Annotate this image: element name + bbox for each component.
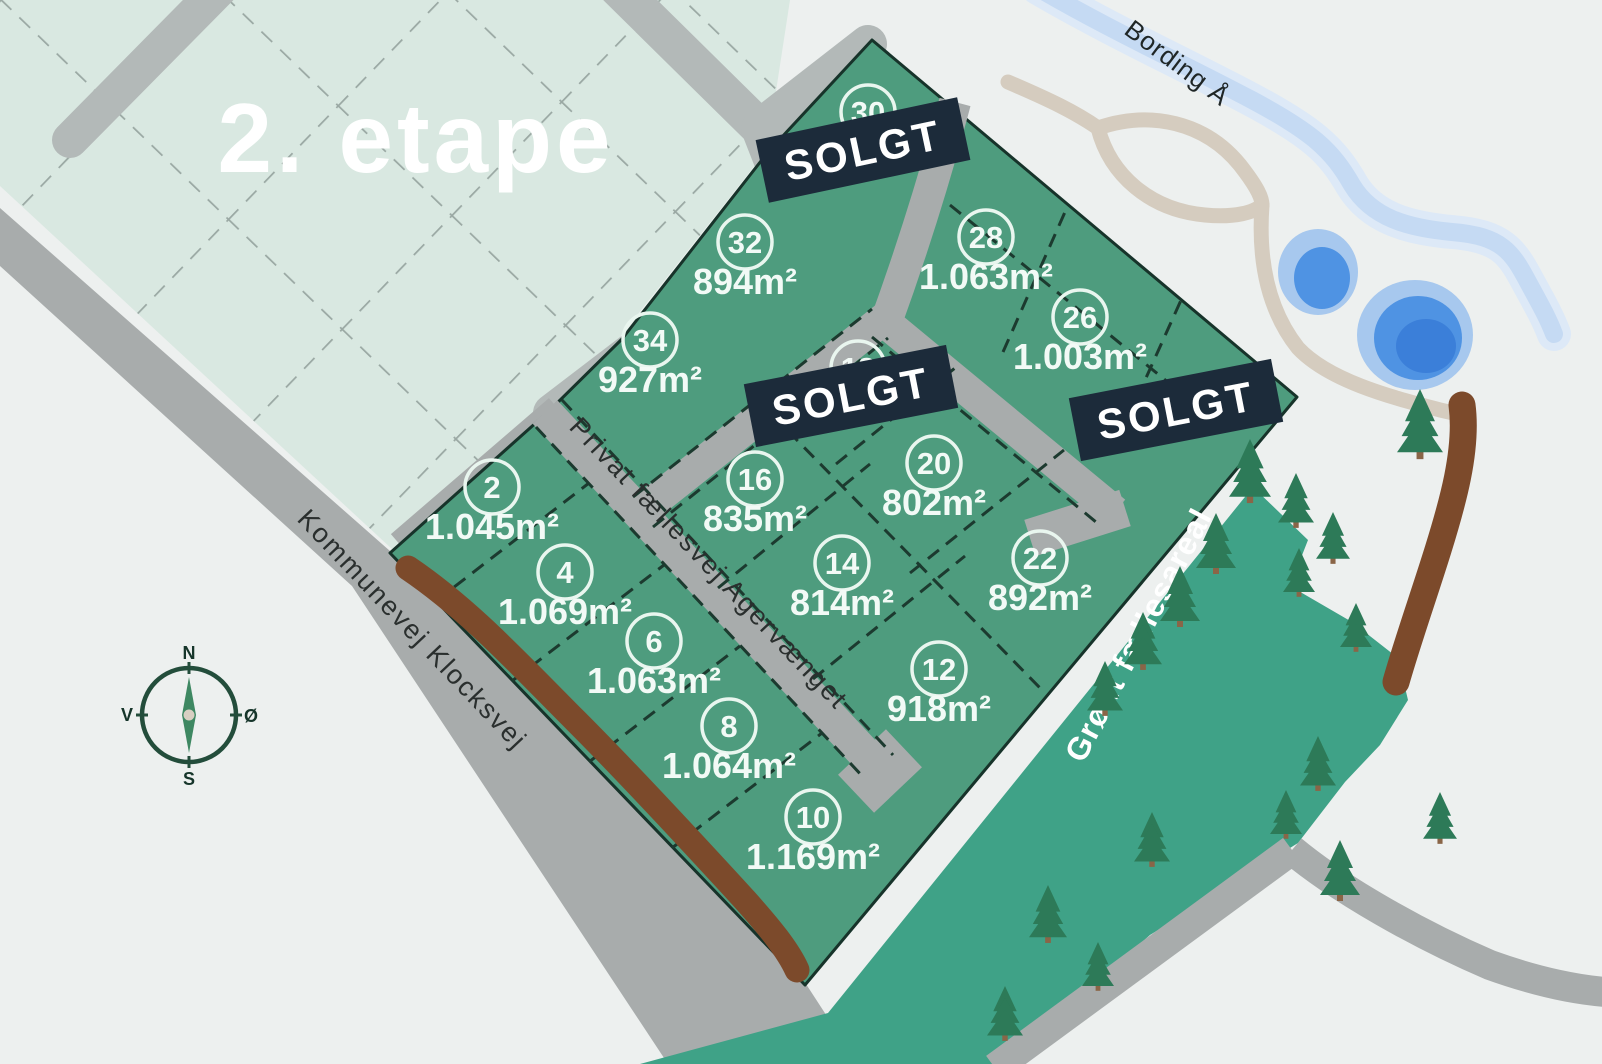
- plot-number: 4: [556, 555, 574, 590]
- plot-number: 10: [796, 800, 830, 835]
- plot-number: 12: [922, 652, 956, 687]
- compass-label-east: Ø: [244, 706, 258, 726]
- plot-area-label: 1.045m²: [425, 506, 559, 547]
- phase-title: 2. etape: [218, 83, 615, 193]
- plot-area-label: 927m²: [598, 359, 702, 400]
- pond-large-deep: [1396, 319, 1456, 373]
- plot-number: 26: [1063, 300, 1097, 335]
- plot-area-label: 1.064m²: [662, 745, 796, 786]
- plot-number: 16: [738, 462, 772, 497]
- plot-area-label: 1.063m²: [919, 256, 1053, 297]
- compass-label-north: N: [183, 643, 196, 663]
- plot-number: 28: [969, 220, 1003, 255]
- compass-label-west: V: [121, 705, 133, 725]
- plot-area-label: 892m²: [988, 577, 1092, 618]
- plot-number: 14: [825, 546, 860, 581]
- plot-area-label: 814m²: [790, 582, 894, 623]
- plot-area-label: 918m²: [887, 688, 991, 729]
- site-plan-page: Privat fællesvej Agervænget Kommunevej K…: [0, 0, 1602, 1064]
- plot-number: 32: [728, 225, 762, 260]
- pond-small: [1294, 247, 1350, 309]
- site-plan-map: Privat fællesvej Agervænget Kommunevej K…: [0, 0, 1602, 1064]
- plot-area-label: 802m²: [882, 482, 986, 523]
- plot-area-label: 1.169m²: [746, 836, 880, 877]
- plot-area-label: 894m²: [693, 261, 797, 302]
- plot-number: 2: [483, 470, 500, 505]
- plot-area-label: 1.069m²: [498, 591, 632, 632]
- plot-number: 34: [633, 323, 668, 358]
- plot-number: 22: [1023, 541, 1057, 576]
- plot-number: 20: [917, 446, 951, 481]
- compass-hub: [184, 710, 195, 721]
- private-road-turnaround: [862, 752, 898, 790]
- plot-number: 8: [720, 709, 737, 744]
- plot-area-label: 1.003m²: [1013, 336, 1147, 377]
- plot-area-label: 1.063m²: [587, 660, 721, 701]
- plot-number: 6: [645, 624, 662, 659]
- compass-label-south: S: [183, 769, 195, 789]
- plot-area-label: 835m²: [703, 498, 807, 539]
